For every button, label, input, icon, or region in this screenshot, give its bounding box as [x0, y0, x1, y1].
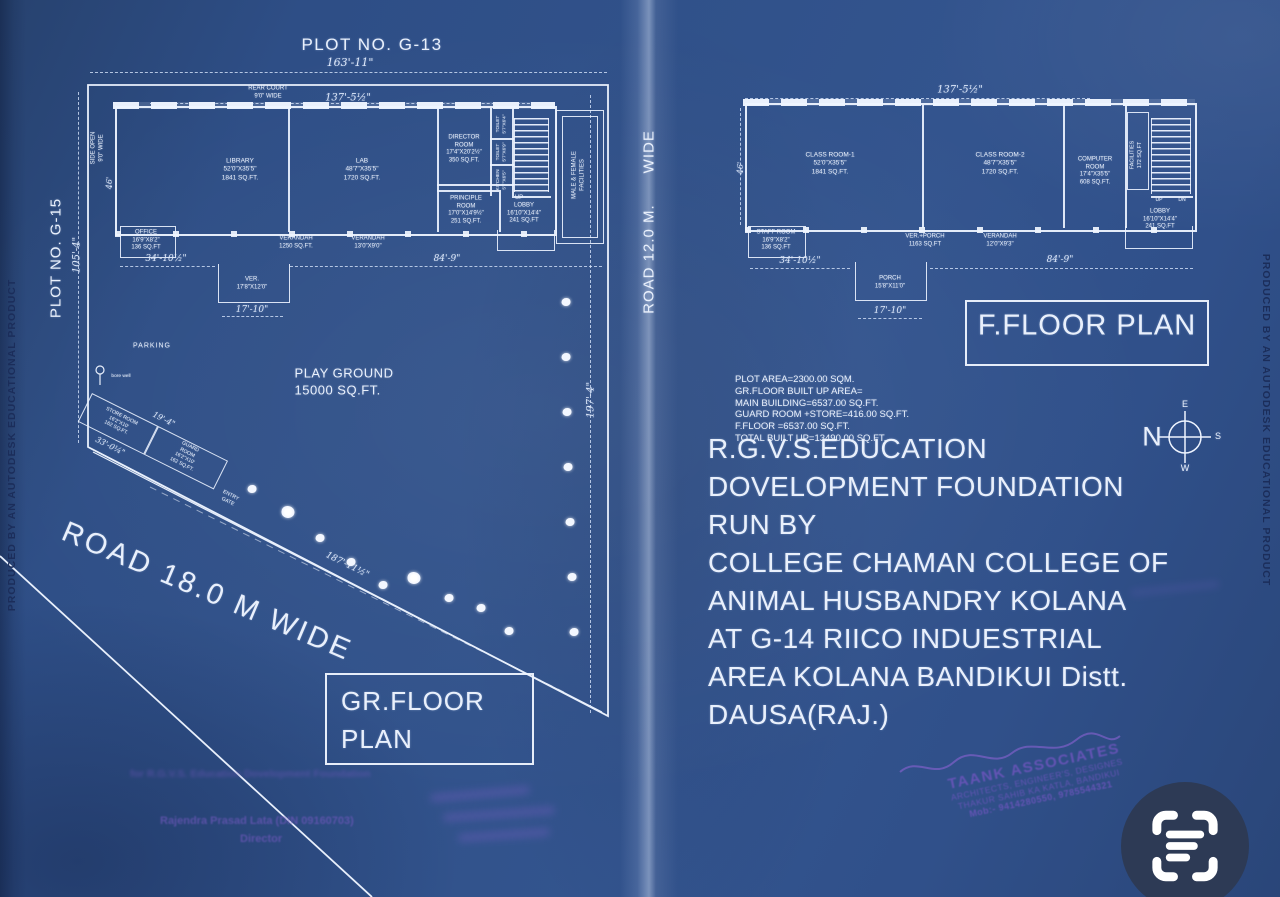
- gf-verandah1-label: VERANDAH 1250 SQ.FT.: [279, 235, 313, 250]
- road-12m-label: ROAD 12.0 M. WIDE: [639, 130, 658, 314]
- produced-by-left: PRODUCED BY AN AUTODESK EDUCATIONAL PROD…: [6, 279, 18, 612]
- description-line: AREA KOLANA BANDIKUI Distt.: [708, 658, 1169, 696]
- director-name-stamp: Rajendra Prasad Lata (DIN 09160703): [160, 815, 354, 827]
- gf-wall-principle-right: [499, 190, 501, 232]
- scan-app-icon[interactable]: [1121, 782, 1249, 897]
- dim-line-total-width: [90, 72, 607, 73]
- gf-dim-line-wing-right: [290, 266, 602, 267]
- gf-wall-toilet-cell2: [490, 164, 514, 166]
- principle-room-label: PRINCIPLE ROOM 17'0"X14'9½" 251 SQ.FT.: [448, 196, 484, 227]
- description-line: AT G-14 RIICO INDUESTRIAL: [708, 620, 1169, 658]
- ff-stairs-up-label: UP: [1155, 198, 1162, 205]
- description-line: R.G.V.S.EDUCATION: [708, 430, 1169, 468]
- scan-frame-icon: [1121, 782, 1249, 897]
- bore-well-icon: [96, 366, 104, 385]
- f-floor-plan-title: F.FLOOR PLAN: [978, 307, 1196, 344]
- compass-south-label: S: [1215, 431, 1221, 443]
- toilet1-label: TOILET 5'7"X6'4": [496, 114, 508, 133]
- foundation-stamp-line: for R.G.V.S. Education Dovelopment Found…: [130, 768, 371, 780]
- project-description-block: R.G.V.S.EDUCATION DOVELOPMENT FOUNDATION…: [708, 430, 1169, 734]
- kitchen-label: KITCHEN 5'7"X6'5": [496, 169, 508, 190]
- note-plot-area: PLOT AREA=2300.00 SQM.: [735, 374, 909, 386]
- class-room1-label: CLASS ROOM-1 52'0"X35'5" 1841 SQ.FT.: [805, 152, 854, 177]
- gf-lobby-label: LOBBY 16'10"X14'4" 241 SQ.FT: [507, 202, 541, 225]
- f-floor-plan-title-box: F.FLOOR PLAN: [965, 300, 1209, 366]
- gr-floor-plan-title: GR.FLOOR PLAN: [341, 683, 485, 758]
- gf-depth-dim: 46': [105, 177, 115, 189]
- produced-by-right: PRODUCED BY AN AUTODESK EDUCATIONAL PROD…: [1260, 254, 1272, 587]
- ff-dim-line-wing-left: [750, 268, 850, 269]
- lab-room-label: LAB 48'7"X35'5" 1720 SQ.FT.: [344, 158, 381, 183]
- compass-east-label: E: [1182, 399, 1188, 411]
- description-line: DAUSA(RAJ.): [708, 696, 1169, 734]
- dim-left-height: 105'-4": [72, 237, 85, 273]
- bore-well-label: bore well: [111, 374, 130, 380]
- gf-facilities-label: MALE & FEMALE FACILITIES: [571, 151, 586, 199]
- office-room-label: OFFICE 16'9"X8'2" 136 SQ.FT: [131, 229, 160, 252]
- gf-wall-lab-director: [437, 108, 439, 232]
- plot-no-g15-label: PLOT NO. G-15: [46, 198, 65, 318]
- description-line: RUN BY: [708, 506, 1169, 544]
- ff-dim-wing-left: 34'-10½": [779, 256, 820, 268]
- class-room2-label: CLASS ROOM-2 48'7"X35'5" 1720 SQ.FT.: [975, 152, 1024, 177]
- gf-dim-porch: 17'-10": [236, 305, 269, 317]
- gf-wall-principle-top: [437, 190, 499, 192]
- director-title-stamp: Director: [240, 833, 282, 845]
- side-open-label: SIDE OPEN 9'0" WIDE: [90, 132, 105, 165]
- gf-wall-toilet-cell1: [490, 138, 514, 140]
- compass-west-label: W: [1181, 463, 1190, 475]
- gf-staircase: [514, 118, 549, 192]
- computer-room-label: COMPUTER ROOM 17'4"X35'5" 608 SQ.FT.: [1078, 157, 1112, 188]
- description-line: DOVELOPMENT FOUNDATION: [708, 468, 1169, 506]
- road-edge-line: [0, 556, 372, 897]
- ff-staircase: [1151, 118, 1191, 194]
- ff-dim-width: 137'-5½": [937, 85, 983, 98]
- dim-total-width: 163'-11": [327, 56, 374, 70]
- gf-wall-toilet-left: [490, 108, 492, 196]
- description-line: COLLEGE CHAMAN COLLEGE OF: [708, 544, 1169, 582]
- ff-dim-wing-right: 84'-9": [1047, 255, 1074, 267]
- gf-dim-wing-left: 34'-10½": [145, 254, 186, 266]
- note-gr-builtup: GR.FLOOR BUILT UP AREA=: [735, 386, 909, 398]
- library-room-label: LIBRARY 52'0"X35'5" 1841 SQ.FT.: [222, 158, 259, 183]
- ff-lobby-label: LOBBY 16'10"X14'4" 241 SQ.FT: [1143, 208, 1177, 231]
- note-main-building: MAIN BUILDING=6537.00 SQ.FT.: [735, 398, 909, 410]
- ff-verandah-label: VERANDAH 12'0"X9'3": [983, 233, 1016, 248]
- ff-wall-class2-computer: [1063, 105, 1065, 228]
- play-ground-label: PLAY GROUND 15000 SQ.FT.: [295, 365, 394, 398]
- ff-ver-porch-label: VER.+PORCH 1163 SQ.FT: [905, 233, 944, 248]
- director-room-label: DIRECTOR ROOM 17'4"X20'2½" 350 SQ.FT.: [446, 135, 482, 166]
- note-guard-store: GUARD ROOM +STORE=416.00 SQ.FT.: [735, 409, 909, 421]
- toilet2-label: TOILET 5'7"X6'9": [496, 142, 508, 161]
- dim-right-height: 197'-4": [586, 382, 599, 418]
- blueprint-scan-page: PLOT NO. G-13 163'-11" REAR COURT 9'0" W…: [0, 0, 1280, 897]
- ff-porch-label: PORCH 15'8"X11'0": [875, 275, 905, 290]
- ff-stairs-dn-label: DN: [1178, 198, 1185, 205]
- gf-dim-wing-right: 84'-9": [434, 254, 461, 266]
- gf-lobby-entrance: [497, 230, 555, 251]
- ff-facilities-label: FACILITIES 172 SQ.FT: [1130, 141, 1144, 170]
- gf-wall-library-lab: [288, 108, 290, 232]
- plot-no-g13-label: PLOT NO. G-13: [301, 34, 442, 56]
- gf-dim-line-wing-left: [120, 266, 215, 267]
- rear-court-label: REAR COURT 9'0" WIDE: [248, 85, 288, 100]
- gr-floor-plan-title-box: GR.FLOOR PLAN: [325, 673, 534, 765]
- staff-room-label: STAFF ROOM 16'9"X8'2" 136 SQ.FT: [757, 229, 796, 252]
- ff-dim-line-porch: [858, 318, 922, 319]
- ff-dim-line-wing-right: [930, 268, 1193, 269]
- ff-dim-porch: 17'-10": [874, 306, 907, 318]
- ff-wall-class1-class2: [922, 105, 924, 228]
- parking-label: PARKING: [133, 343, 171, 352]
- gf-verandah2-label: VERANDAH 13'0"X9'0": [351, 235, 384, 250]
- description-line: ANIMAL HUSBANDRY KOLANA: [708, 582, 1169, 620]
- gf-verandah-columns: [115, 231, 553, 237]
- gf-ver-porch-label: VER. 17'8"X12'0": [237, 276, 268, 291]
